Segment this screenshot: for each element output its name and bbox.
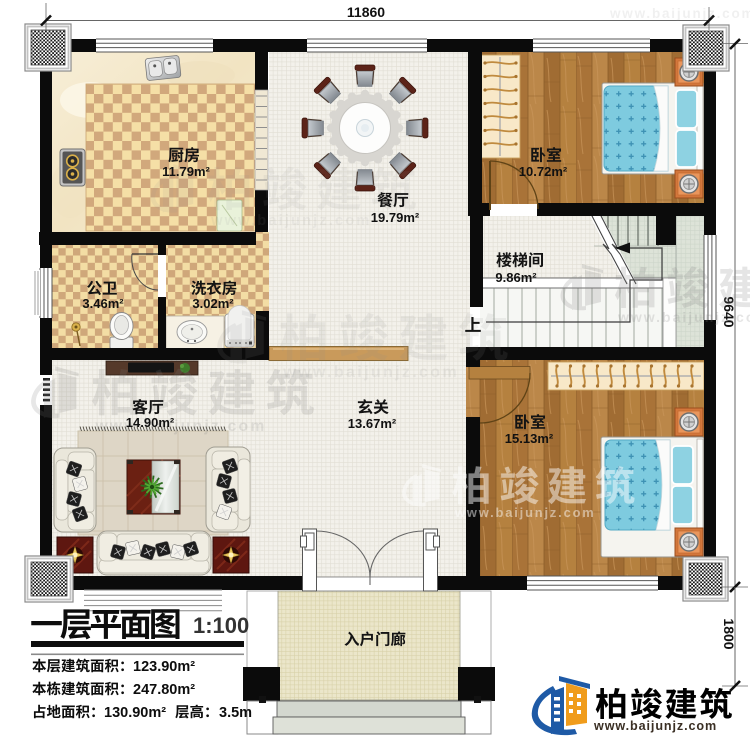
svg-text:247.80m²: 247.80m² — [133, 682, 195, 698]
svg-text:19.79m²: 19.79m² — [371, 210, 420, 225]
svg-text:123.90m²: 123.90m² — [133, 659, 195, 675]
svg-text:13.67m²: 13.67m² — [348, 416, 397, 431]
svg-text:14.90m²: 14.90m² — [126, 415, 175, 430]
svg-text:1800: 1800 — [721, 618, 737, 649]
svg-text:www.baijunjz.com: www.baijunjz.com — [617, 309, 750, 325]
svg-text:11.79m²: 11.79m² — [162, 164, 210, 179]
svg-text:www.baijunjz.com: www.baijunjz.com — [210, 213, 371, 229]
svg-text:11860: 11860 — [347, 4, 385, 20]
svg-text:www.baijunjz.com: www.baijunjz.com — [593, 719, 717, 733]
svg-text:www.baijunjz.com: www.baijunjz.com — [609, 6, 750, 21]
svg-text:www.baijunjz.com: www.baijunjz.com — [94, 418, 266, 435]
svg-text:130.90m²: 130.90m² — [104, 705, 166, 721]
svg-text:www.baijunjz.com: www.baijunjz.com — [454, 505, 596, 520]
svg-text:10.72m²: 10.72m² — [519, 164, 568, 179]
svg-text:3.46m²: 3.46m² — [82, 296, 124, 311]
svg-text:3.02m²: 3.02m² — [192, 296, 234, 311]
svg-text:15.13m²: 15.13m² — [505, 431, 554, 446]
svg-text:9.86m²: 9.86m² — [495, 270, 537, 285]
svg-text:3.5m: 3.5m — [219, 705, 252, 721]
svg-text:1:100: 1:100 — [193, 613, 249, 638]
